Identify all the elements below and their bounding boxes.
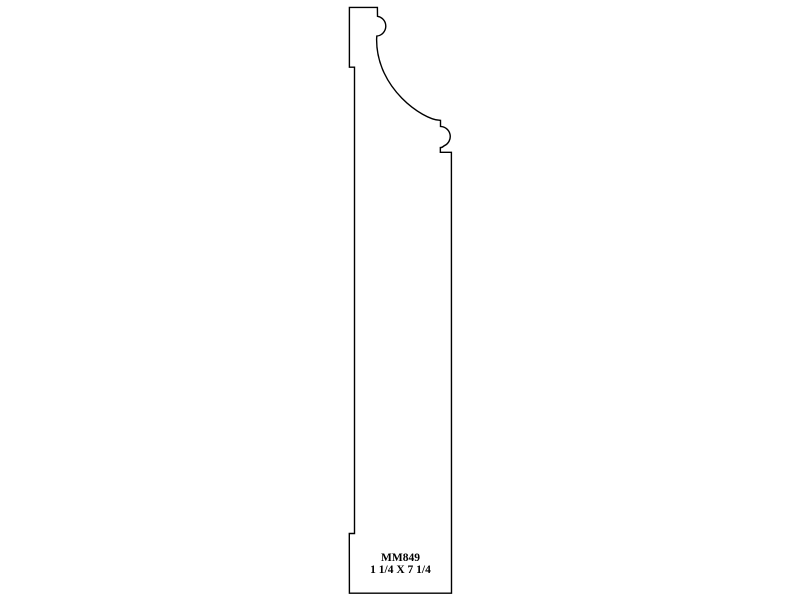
svg-text:1 1/4 X 7 1/4: 1 1/4 X 7 1/4	[370, 564, 431, 576]
svg-text:MM849: MM849	[381, 552, 420, 564]
